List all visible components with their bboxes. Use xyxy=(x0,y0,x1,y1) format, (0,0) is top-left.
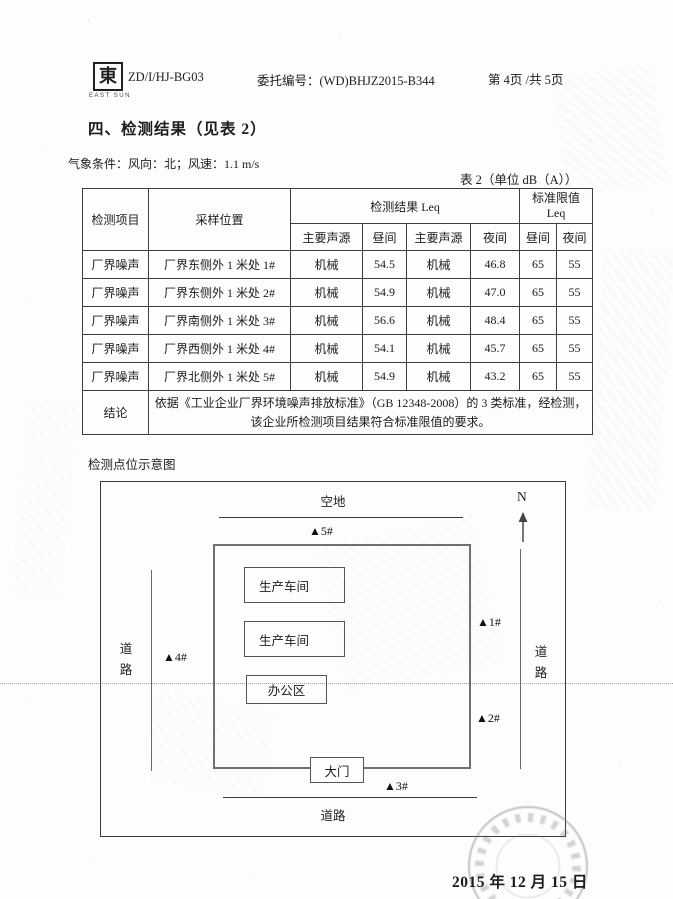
col-header-position: 采样位置 xyxy=(149,189,291,251)
cell-limit-night: 55 xyxy=(557,307,593,335)
cell-day: 56.6 xyxy=(363,307,407,335)
office-box: 办公区 xyxy=(246,675,327,704)
site-diagram: 空地 ▲5# 生产车间 生产车间 办公区 大门 ▲3# 道路 道路 ▲4# N … xyxy=(100,481,566,837)
document-code: ZD/I/HJ-BG03 xyxy=(128,70,204,85)
cell-source-day: 机械 xyxy=(291,279,363,307)
cell-position: 厂界西侧外 1 米处 4# xyxy=(149,335,291,363)
north-arrow-icon xyxy=(516,512,530,544)
cell-source-day: 机械 xyxy=(291,251,363,279)
subheader-source-day: 主要声源 xyxy=(291,224,363,251)
cell-night: 47.0 xyxy=(471,279,520,307)
road-left-label: 道路 xyxy=(118,639,134,680)
weather-conditions: 气象条件：风向：北；风速：1.1 m/s xyxy=(68,155,259,172)
cell-position: 厂界北侧外 1 米处 5# xyxy=(149,363,291,391)
monitor-point-2: ▲2# xyxy=(476,711,500,726)
paper-fold-line xyxy=(0,683,673,684)
table-row: 厂界噪声 厂界西侧外 1 米处 4# 机械 54.1 机械 45.7 65 55 xyxy=(83,335,593,363)
subheader-source-night: 主要声源 xyxy=(407,224,471,251)
cell-limit-day: 65 xyxy=(520,279,557,307)
cell-night: 46.8 xyxy=(471,251,520,279)
subheader-night: 夜间 xyxy=(471,224,520,251)
cell-position: 厂界东侧外 1 米处 1# xyxy=(149,251,291,279)
table-row: 厂界噪声 厂界北侧外 1 米处 5# 机械 54.9 机械 43.2 65 55 xyxy=(83,363,593,391)
conclusion-label: 结论 xyxy=(83,391,149,435)
monitor-point-4: ▲4# xyxy=(163,650,187,665)
col-group-result: 检测结果 Leq xyxy=(291,189,520,224)
cell-source-night: 机械 xyxy=(407,251,471,279)
road-right-line xyxy=(520,549,521,769)
cell-day: 54.9 xyxy=(363,279,407,307)
cell-night: 48.4 xyxy=(471,307,520,335)
cell-item: 厂界噪声 xyxy=(83,279,149,307)
north-label: N xyxy=(517,489,527,505)
report-date: 2015 年 12 月 15 日 xyxy=(452,870,588,892)
section-title: 四、检测结果（见表 2） xyxy=(88,117,267,139)
cell-source-day: 机械 xyxy=(291,335,363,363)
cell-position: 厂界南侧外 1 米处 3# xyxy=(149,307,291,335)
cell-source-night: 机械 xyxy=(407,335,471,363)
page-number: 第 4页 /共 5页 xyxy=(488,69,563,88)
commission-number: 委托编号：(WD)BHJZ2015-B344 xyxy=(257,70,435,89)
report-page: 東 EAST SUN ZD/I/HJ-BG03 委托编号：(WD)BHJZ201… xyxy=(0,0,673,899)
workshop-2-label: 生产车间 xyxy=(245,630,309,649)
open-space-boundary-line xyxy=(219,517,463,518)
col-group-limit-line2: Leq xyxy=(522,206,590,221)
road-left-line xyxy=(151,570,152,771)
cell-day: 54.1 xyxy=(363,335,407,363)
cell-source-day: 机械 xyxy=(291,363,363,391)
cell-day: 54.5 xyxy=(363,251,407,279)
cell-source-night: 机械 xyxy=(407,307,471,335)
table-row: 厂界噪声 厂界东侧外 1 米处 2# 机械 54.9 机械 47.0 65 55 xyxy=(83,279,593,307)
cell-day: 54.9 xyxy=(363,363,407,391)
cell-item: 厂界噪声 xyxy=(83,335,149,363)
scan-speckles xyxy=(0,0,1,1)
scan-artifact xyxy=(586,248,673,512)
gate-box: 大门 xyxy=(310,757,364,783)
monitor-point-5: ▲5# xyxy=(309,524,333,539)
cell-item: 厂界噪声 xyxy=(83,363,149,391)
cell-limit-night: 55 xyxy=(557,363,593,391)
company-logo: 東 xyxy=(93,62,123,91)
cell-source-day: 机械 xyxy=(291,307,363,335)
table-caption: 表 2（单位 dB（A）） xyxy=(460,169,577,188)
workshop-1-label: 生产车间 xyxy=(245,576,309,595)
conclusion-text: 依据《工业企业厂界环境噪声排放标准》（GB 12348-2008）的 3 类标准… xyxy=(149,391,593,435)
cell-position: 厂界东侧外 1 米处 2# xyxy=(149,279,291,307)
workshop-1-box: 生产车间 xyxy=(244,567,345,603)
diagram-title: 检测点位示意图 xyxy=(88,454,176,473)
road-bottom-line xyxy=(223,797,477,798)
cell-limit-night: 55 xyxy=(557,251,593,279)
col-group-limit: 标准限值 Leq xyxy=(520,189,593,224)
col-header-item: 检测项目 xyxy=(83,189,149,251)
cell-night: 45.7 xyxy=(471,335,520,363)
subheader-limit-night: 夜间 xyxy=(557,224,593,251)
cell-limit-day: 65 xyxy=(520,363,557,391)
open-space-label: 空地 xyxy=(101,491,565,510)
cell-source-night: 机械 xyxy=(407,279,471,307)
cell-limit-night: 55 xyxy=(557,335,593,363)
cell-limit-day: 65 xyxy=(520,251,557,279)
subheader-day: 昼间 xyxy=(363,224,407,251)
cell-item: 厂界噪声 xyxy=(83,307,149,335)
company-logo-caption: EAST SUN xyxy=(89,93,131,99)
table-row: 厂界噪声 厂界东侧外 1 米处 1# 机械 54.5 机械 46.8 65 55 xyxy=(83,251,593,279)
results-table: 检测项目 采样位置 检测结果 Leq 标准限值 Leq 主要声源 昼间 主要声源… xyxy=(82,188,593,435)
cell-night: 43.2 xyxy=(471,363,520,391)
col-group-limit-line1: 标准限值 xyxy=(522,191,590,206)
cell-limit-night: 55 xyxy=(557,279,593,307)
scan-artifact xyxy=(10,398,81,602)
table-row: 厂界噪声 厂界南侧外 1 米处 3# 机械 56.6 机械 48.4 65 55 xyxy=(83,307,593,335)
monitor-point-1: ▲1# xyxy=(477,615,501,630)
cell-limit-day: 65 xyxy=(520,335,557,363)
road-right-label: 道路 xyxy=(533,642,549,683)
workshop-2-box: 生产车间 xyxy=(244,621,345,657)
cell-limit-day: 65 xyxy=(520,307,557,335)
gate-label: 大门 xyxy=(324,761,349,780)
cell-item: 厂界噪声 xyxy=(83,251,149,279)
subheader-limit-day: 昼间 xyxy=(520,224,557,251)
cell-source-night: 机械 xyxy=(407,363,471,391)
monitor-point-3: ▲3# xyxy=(384,779,408,794)
